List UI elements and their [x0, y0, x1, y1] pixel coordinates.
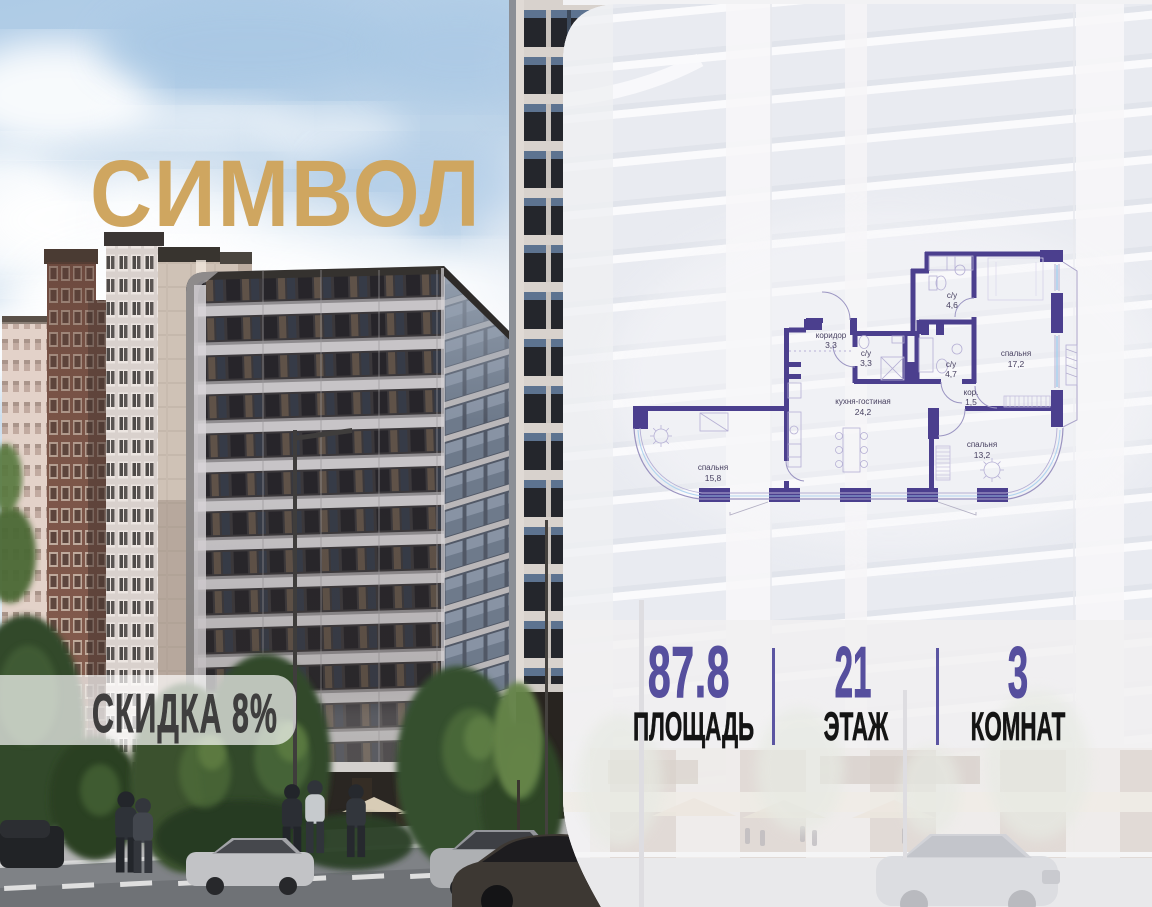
svg-text:с/у: с/у [946, 360, 956, 369]
svg-text:коридор: коридор [816, 331, 847, 340]
svg-text:кухня-гостиная: кухня-гостиная [835, 397, 891, 406]
svg-text:15,8: 15,8 [705, 473, 722, 483]
svg-text:3,3: 3,3 [860, 358, 872, 368]
svg-text:4,7: 4,7 [945, 369, 957, 379]
svg-text:1,5: 1,5 [965, 397, 977, 407]
svg-text:3,3: 3,3 [825, 340, 837, 350]
svg-text:с/у: с/у [861, 349, 871, 358]
svg-text:спальня: спальня [1001, 349, 1031, 358]
svg-text:24,2: 24,2 [855, 407, 872, 417]
svg-text:с/у: с/у [947, 291, 957, 300]
svg-text:кор.: кор. [964, 388, 979, 397]
svg-text:17,2: 17,2 [1008, 359, 1025, 369]
svg-text:спальня: спальня [967, 440, 997, 449]
svg-text:4,6: 4,6 [946, 300, 958, 310]
svg-text:спальня: спальня [698, 463, 728, 472]
svg-text:13,2: 13,2 [974, 450, 991, 460]
